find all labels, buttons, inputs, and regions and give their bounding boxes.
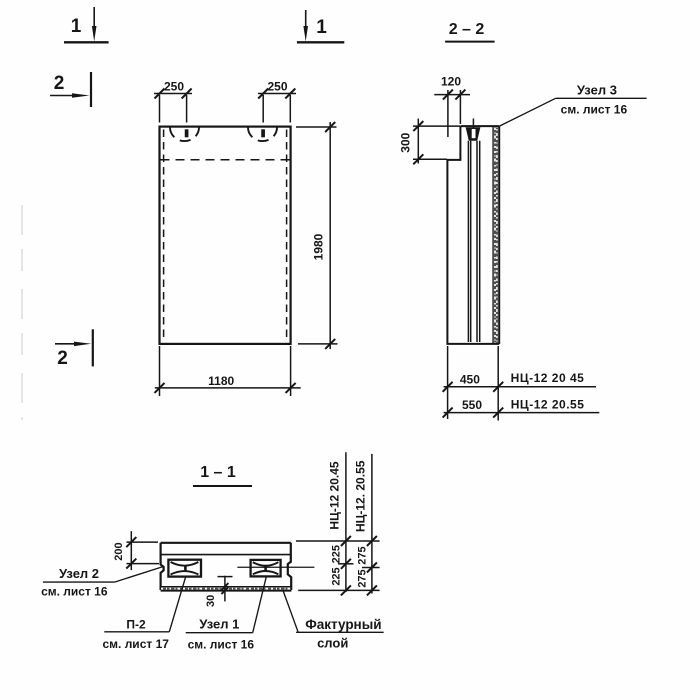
svg-text:1: 1 — [71, 16, 82, 37]
svg-text:1: 1 — [316, 17, 327, 38]
svg-text:200: 200 — [113, 542, 125, 560]
svg-text:1980: 1980 — [312, 233, 326, 260]
svg-text:275: 275 — [357, 569, 369, 587]
svg-text:Узел 1: Узел 1 — [199, 617, 239, 632]
svg-text:Фактурный: Фактурный — [305, 617, 381, 632]
svg-text:Узел 2: Узел 2 — [59, 566, 99, 581]
svg-text:1 – 1: 1 – 1 — [200, 464, 236, 481]
svg-text:НЦ-12 20 45: НЦ-12 20 45 — [511, 371, 585, 385]
svg-text:слой: слой — [317, 636, 348, 651]
svg-text:250: 250 — [164, 80, 184, 94]
svg-text:120: 120 — [441, 75, 461, 89]
svg-text:1180: 1180 — [208, 374, 234, 388]
svg-text:см. лист 16: см. лист 16 — [561, 103, 628, 117]
svg-text:225: 225 — [331, 567, 343, 585]
svg-text:см. лист 17: см. лист 17 — [102, 637, 169, 651]
svg-text:П-2: П-2 — [126, 618, 146, 632]
svg-text:Узел 3: Узел 3 — [577, 83, 617, 98]
svg-text:250: 250 — [267, 80, 287, 94]
svg-text:550: 550 — [462, 398, 482, 412]
svg-text:НЦ-12. 20.55: НЦ-12. 20.55 — [354, 460, 368, 532]
svg-text:275: 275 — [357, 546, 369, 564]
svg-text:2: 2 — [54, 73, 65, 94]
svg-text:30: 30 — [205, 595, 217, 607]
svg-text:см. лист 16: см. лист 16 — [188, 638, 255, 652]
svg-text:НЦ-12 20.45: НЦ-12 20.45 — [328, 461, 342, 529]
svg-text:300: 300 — [399, 132, 413, 152]
svg-text:НЦ-12 20.55: НЦ-12 20.55 — [511, 398, 585, 412]
svg-text:2 – 2: 2 – 2 — [449, 21, 485, 38]
svg-text:225: 225 — [331, 545, 343, 563]
svg-text:450: 450 — [460, 372, 480, 386]
svg-text:2: 2 — [57, 348, 68, 369]
svg-text:см. лист 16: см. лист 16 — [41, 585, 108, 599]
